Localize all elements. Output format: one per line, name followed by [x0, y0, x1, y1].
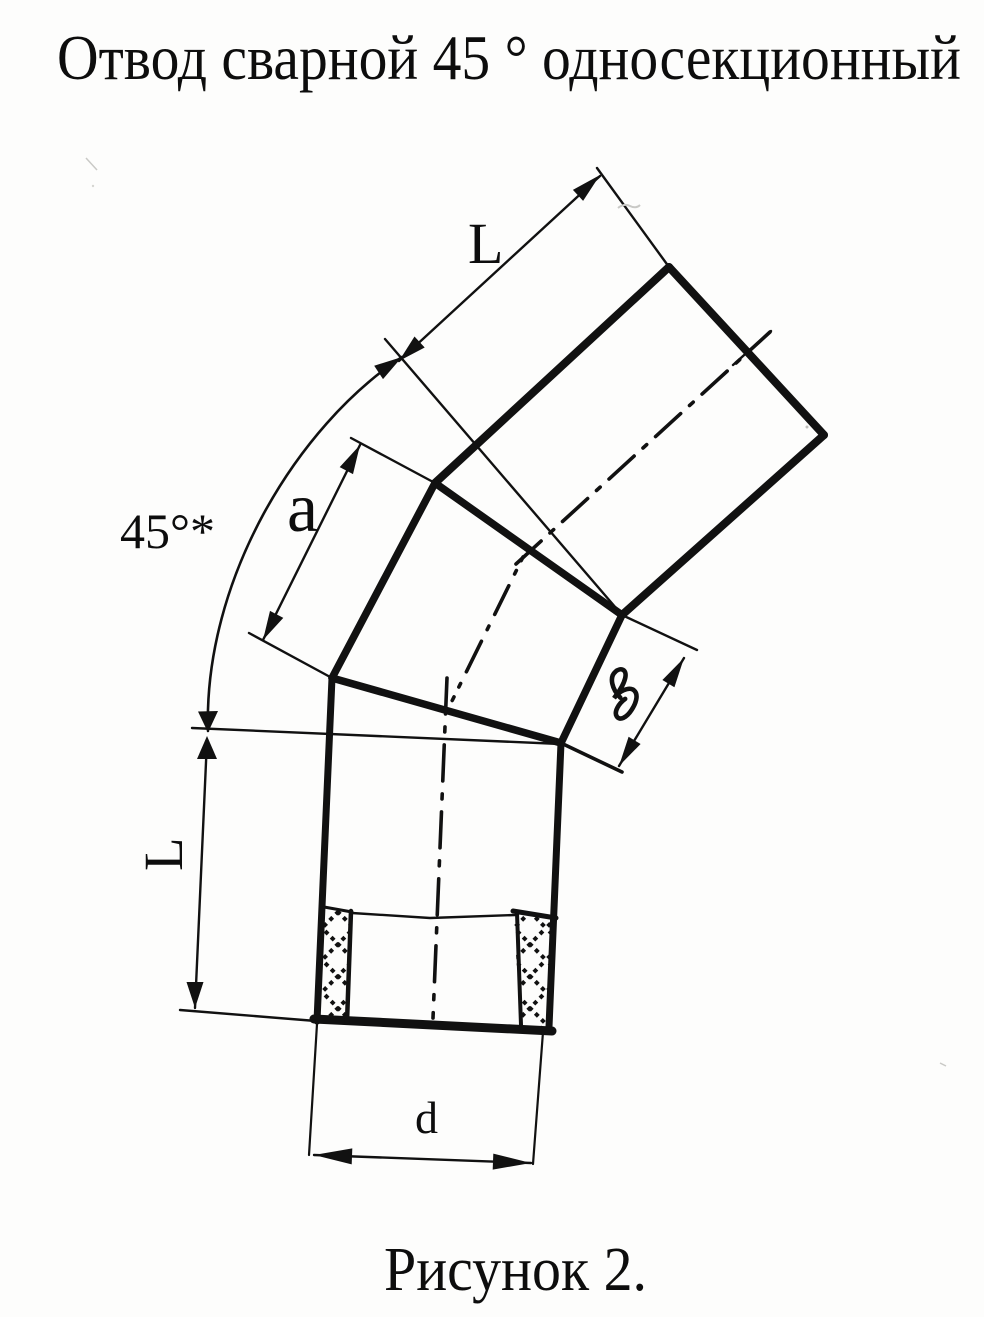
- svg-text:a: a: [287, 470, 318, 547]
- svg-text:45°*: 45°*: [120, 503, 215, 559]
- svg-text:L: L: [133, 837, 194, 871]
- svg-text:Отвод сварной 45 ° односекцион: Отвод сварной 45 ° односекционный: [57, 23, 961, 93]
- svg-text:d: d: [415, 1092, 438, 1143]
- svg-text:L: L: [468, 211, 503, 276]
- svg-text:Рисунок 2.: Рисунок 2.: [384, 1236, 647, 1304]
